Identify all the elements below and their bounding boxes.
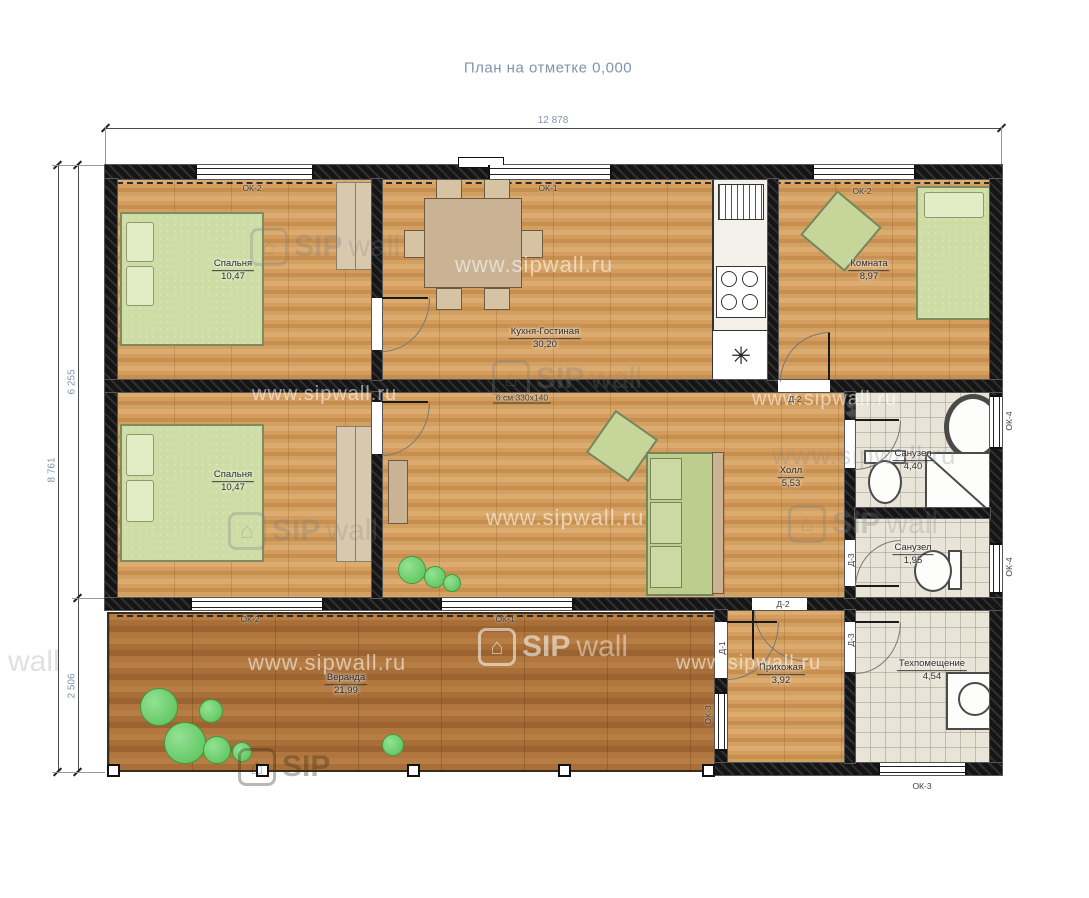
plant	[398, 556, 426, 584]
sofa-cushion	[650, 458, 682, 500]
console-table	[388, 460, 408, 524]
deck-post	[702, 764, 715, 777]
window	[190, 598, 324, 610]
room-name: Санузел	[892, 542, 933, 555]
watermark-wall-text: wall	[326, 514, 378, 548]
floor-plan-canvas: План на отметке 0,000 12 878 8 761 6 255…	[0, 0, 1089, 898]
watermark-house-icon	[238, 748, 276, 786]
door-opening	[372, 402, 382, 454]
extension-line	[72, 598, 105, 599]
window-label: ОК-1	[538, 183, 557, 193]
chair	[484, 178, 510, 200]
room-area: 10,47	[212, 483, 254, 495]
room-area: 8,97	[848, 272, 889, 284]
sink-rack	[718, 184, 764, 220]
room-name: Спальня	[212, 258, 254, 271]
door-opening	[845, 622, 855, 672]
veranda-dashed-line	[117, 615, 713, 617]
dimension-height-total: 8 761	[47, 457, 58, 482]
window-label: ОК-2	[240, 614, 259, 624]
watermark-sip-text: SIP	[536, 362, 584, 396]
window	[990, 395, 1002, 449]
sofa-cushion	[650, 546, 682, 588]
stove-burner	[742, 271, 758, 287]
window-label: ОК-2	[852, 186, 871, 196]
watermark-sip-text: SIP	[294, 230, 342, 264]
window	[715, 692, 727, 751]
plant	[140, 688, 178, 726]
window	[440, 598, 574, 610]
dimension-height-main: 6 255	[67, 369, 78, 394]
window	[488, 165, 612, 179]
door-label: Д-3	[846, 553, 856, 566]
plant	[443, 574, 461, 592]
watermark-logo: SIP wall	[228, 512, 378, 550]
watermark-sip-text: SIP	[282, 750, 330, 784]
dimension-line-left-outer	[58, 165, 59, 772]
dimension-line-left-inner	[78, 165, 79, 772]
room-label-bathroom-1: Санузел 4,40	[892, 448, 933, 474]
room-label-bedroom-2: Спальня 10,47	[212, 469, 254, 495]
watermark-wall-text: wall	[8, 645, 60, 679]
dimension-width: 12 878	[538, 115, 569, 126]
watermark-sip-text: SIP	[272, 514, 320, 548]
fridge-snowflake-icon	[712, 330, 770, 382]
room-area: 5,53	[778, 479, 804, 491]
room-label-bathroom-2: Санузел 1,95	[892, 542, 933, 568]
stove-burner	[721, 271, 737, 287]
room-label-room: Комната 8,97	[848, 258, 889, 284]
room-name: Техпомещение	[897, 658, 967, 671]
extension-line	[52, 772, 105, 773]
pillow	[126, 266, 154, 306]
deck-post	[558, 764, 571, 777]
door-label: Д-2	[776, 599, 789, 609]
watermark-wall-text: wall	[590, 362, 642, 396]
room-name: Спальня	[212, 469, 254, 482]
watermark-url: www.sipwall.ru	[752, 388, 897, 411]
plant	[203, 736, 231, 764]
window-label: ОК-4	[1004, 411, 1014, 430]
wall-exterior-right	[990, 179, 1002, 775]
deck-post	[107, 764, 120, 777]
watermark-wall-text: wall	[886, 507, 938, 541]
deck-post	[407, 764, 420, 777]
room-label-tech-room: Техпомещение 4,54	[897, 658, 967, 684]
watermark-house-icon	[250, 228, 288, 266]
stove-burner	[721, 294, 737, 310]
watermark-url: www.sipwall.ru	[455, 252, 613, 278]
room-area: 21,99	[325, 686, 367, 698]
pillow	[126, 222, 154, 262]
chair	[436, 288, 462, 310]
room-area: 4,54	[897, 672, 967, 684]
watermark-wall-text: wall	[348, 230, 400, 264]
sofa-cushion	[650, 502, 682, 544]
room-label-veranda: Веранда 21,99	[325, 672, 367, 698]
window-label: ОК-2	[242, 183, 261, 193]
watermark-logo: SIP wall	[250, 228, 400, 266]
pillow	[126, 480, 154, 522]
room-label-entry-hall: Прихожая 3,92	[757, 662, 805, 688]
window-label: ОК-3	[912, 781, 931, 791]
room-name: Веранда	[325, 672, 367, 685]
watermark-url: www.sipwall.ru	[252, 383, 397, 406]
watermark-house-icon	[228, 512, 266, 550]
dimension-height-veranda: 2 506	[67, 673, 78, 698]
wall-partition	[768, 179, 778, 380]
chair	[484, 288, 510, 310]
room-name: Комната	[848, 258, 889, 271]
watermark-wall-text: wall	[576, 630, 628, 664]
chair	[436, 178, 462, 200]
plant	[164, 722, 206, 764]
room-name: Кухня-Гостиная	[509, 326, 581, 339]
watermark-url: www.sipwall.ru	[486, 505, 644, 531]
plant	[382, 734, 404, 756]
sofa-side-shelf	[712, 452, 724, 594]
room-label-hall: Холл 5,53	[778, 465, 804, 491]
window	[990, 543, 1002, 594]
window	[195, 165, 314, 179]
room-area: 1,95	[892, 556, 933, 568]
pillow	[126, 434, 154, 476]
room-area: 30,20	[509, 340, 581, 352]
watermark-logo: SIP wall	[478, 628, 628, 666]
door-opening	[372, 298, 382, 350]
door-label: Д-3	[846, 403, 856, 416]
chair	[404, 230, 426, 258]
window	[812, 165, 916, 179]
extension-line	[1001, 126, 1002, 166]
door-label: Д-1	[717, 641, 727, 654]
watermark-house-icon	[788, 505, 826, 543]
window-label: ОК-4	[1004, 557, 1014, 576]
room-area: 3,92	[757, 676, 805, 688]
page-title: План на отметке 0,000	[464, 60, 632, 77]
beam-annotation: 6 см 330х140	[493, 393, 551, 404]
watermark-sip-text: SIP	[522, 630, 570, 664]
door-label: Д-2	[788, 394, 801, 404]
watermark-logo: SIP	[238, 748, 330, 786]
watermark-house-icon	[478, 628, 516, 666]
room-label-kitchen-living: Кухня-Гостиная 30,20	[509, 326, 581, 352]
room-name: Санузел	[892, 448, 933, 461]
extension-line	[105, 126, 106, 166]
window	[878, 763, 967, 775]
window-label: ОК-3	[703, 705, 713, 724]
room-label-bedroom-1: Спальня 10,47	[212, 258, 254, 284]
pillow	[924, 192, 984, 218]
room-name: Прихожая	[757, 662, 805, 675]
water-heater-drum	[958, 682, 992, 716]
plant	[199, 699, 223, 723]
watermark-logo: SIP wall	[788, 505, 938, 543]
dimension-line-top	[105, 128, 1002, 129]
door-label: Д-3	[846, 633, 856, 646]
wall-exterior-left	[105, 179, 117, 610]
window-label: ОК-1	[495, 614, 514, 624]
stove-burner	[742, 294, 758, 310]
watermark-logo: wall	[8, 645, 60, 679]
room-area: 10,47	[212, 272, 254, 284]
room-area: 4,40	[892, 462, 933, 474]
watermark-sip-text: SIP	[832, 507, 880, 541]
extension-line	[52, 165, 105, 166]
room-name: Холл	[778, 465, 804, 478]
